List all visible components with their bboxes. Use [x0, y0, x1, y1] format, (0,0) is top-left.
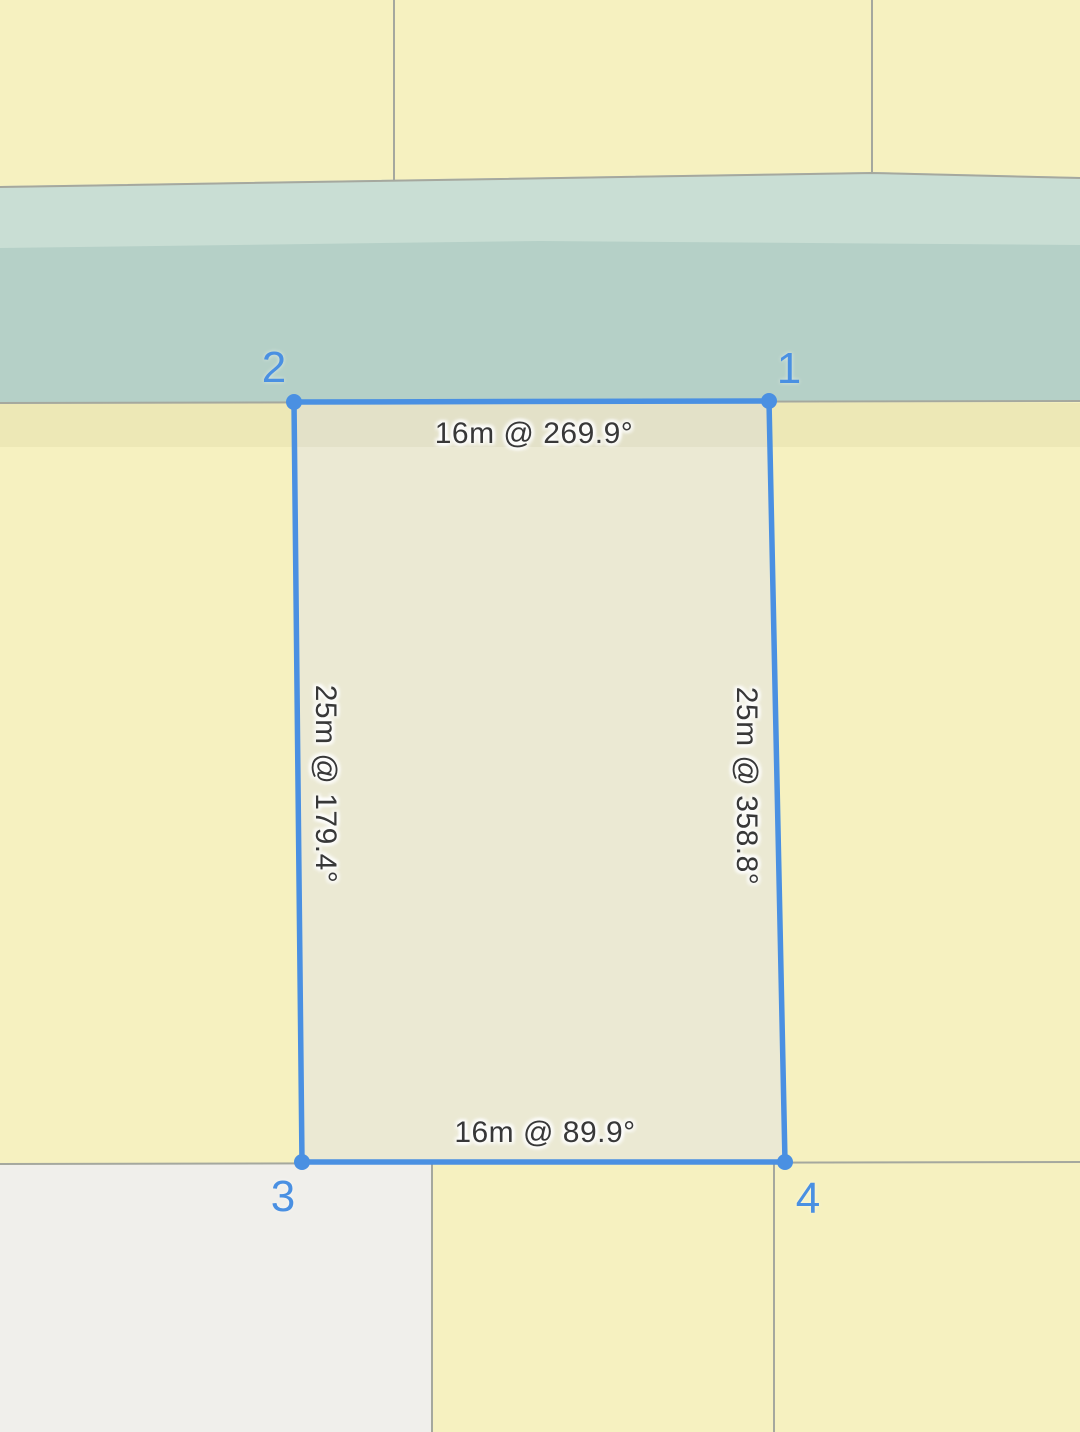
road-band-dark: [0, 241, 1080, 402]
open-area: [0, 1163, 433, 1432]
map-view[interactable]: 16m @ 269.9° 16m @ 89.9° 25m @ 179.4° 25…: [0, 0, 1080, 1432]
vertex-handle-1[interactable]: [761, 393, 777, 409]
vertex-handle-3[interactable]: [294, 1154, 310, 1170]
vertex-handle-4[interactable]: [777, 1154, 793, 1170]
map-canvas[interactable]: [0, 0, 1080, 1432]
parcel-polygon[interactable]: [294, 401, 785, 1162]
vertex-handle-2[interactable]: [286, 394, 302, 410]
road-edge-shadow: [0, 403, 1080, 447]
